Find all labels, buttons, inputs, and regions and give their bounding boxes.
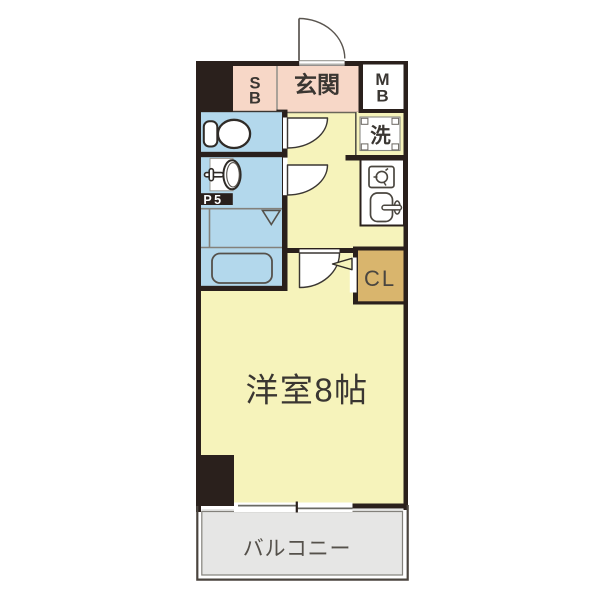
svg-text:バルコニー: バルコニー xyxy=(243,538,352,561)
svg-text:洋室8帖: 洋室8帖 xyxy=(245,372,368,409)
svg-text:CL: CL xyxy=(364,266,396,291)
svg-text:B: B xyxy=(249,90,261,108)
svg-text:玄関: 玄関 xyxy=(294,72,340,98)
svg-text:B: B xyxy=(376,87,388,106)
svg-text:洗: 洗 xyxy=(370,125,391,148)
svg-text:P5: P5 xyxy=(203,193,223,207)
